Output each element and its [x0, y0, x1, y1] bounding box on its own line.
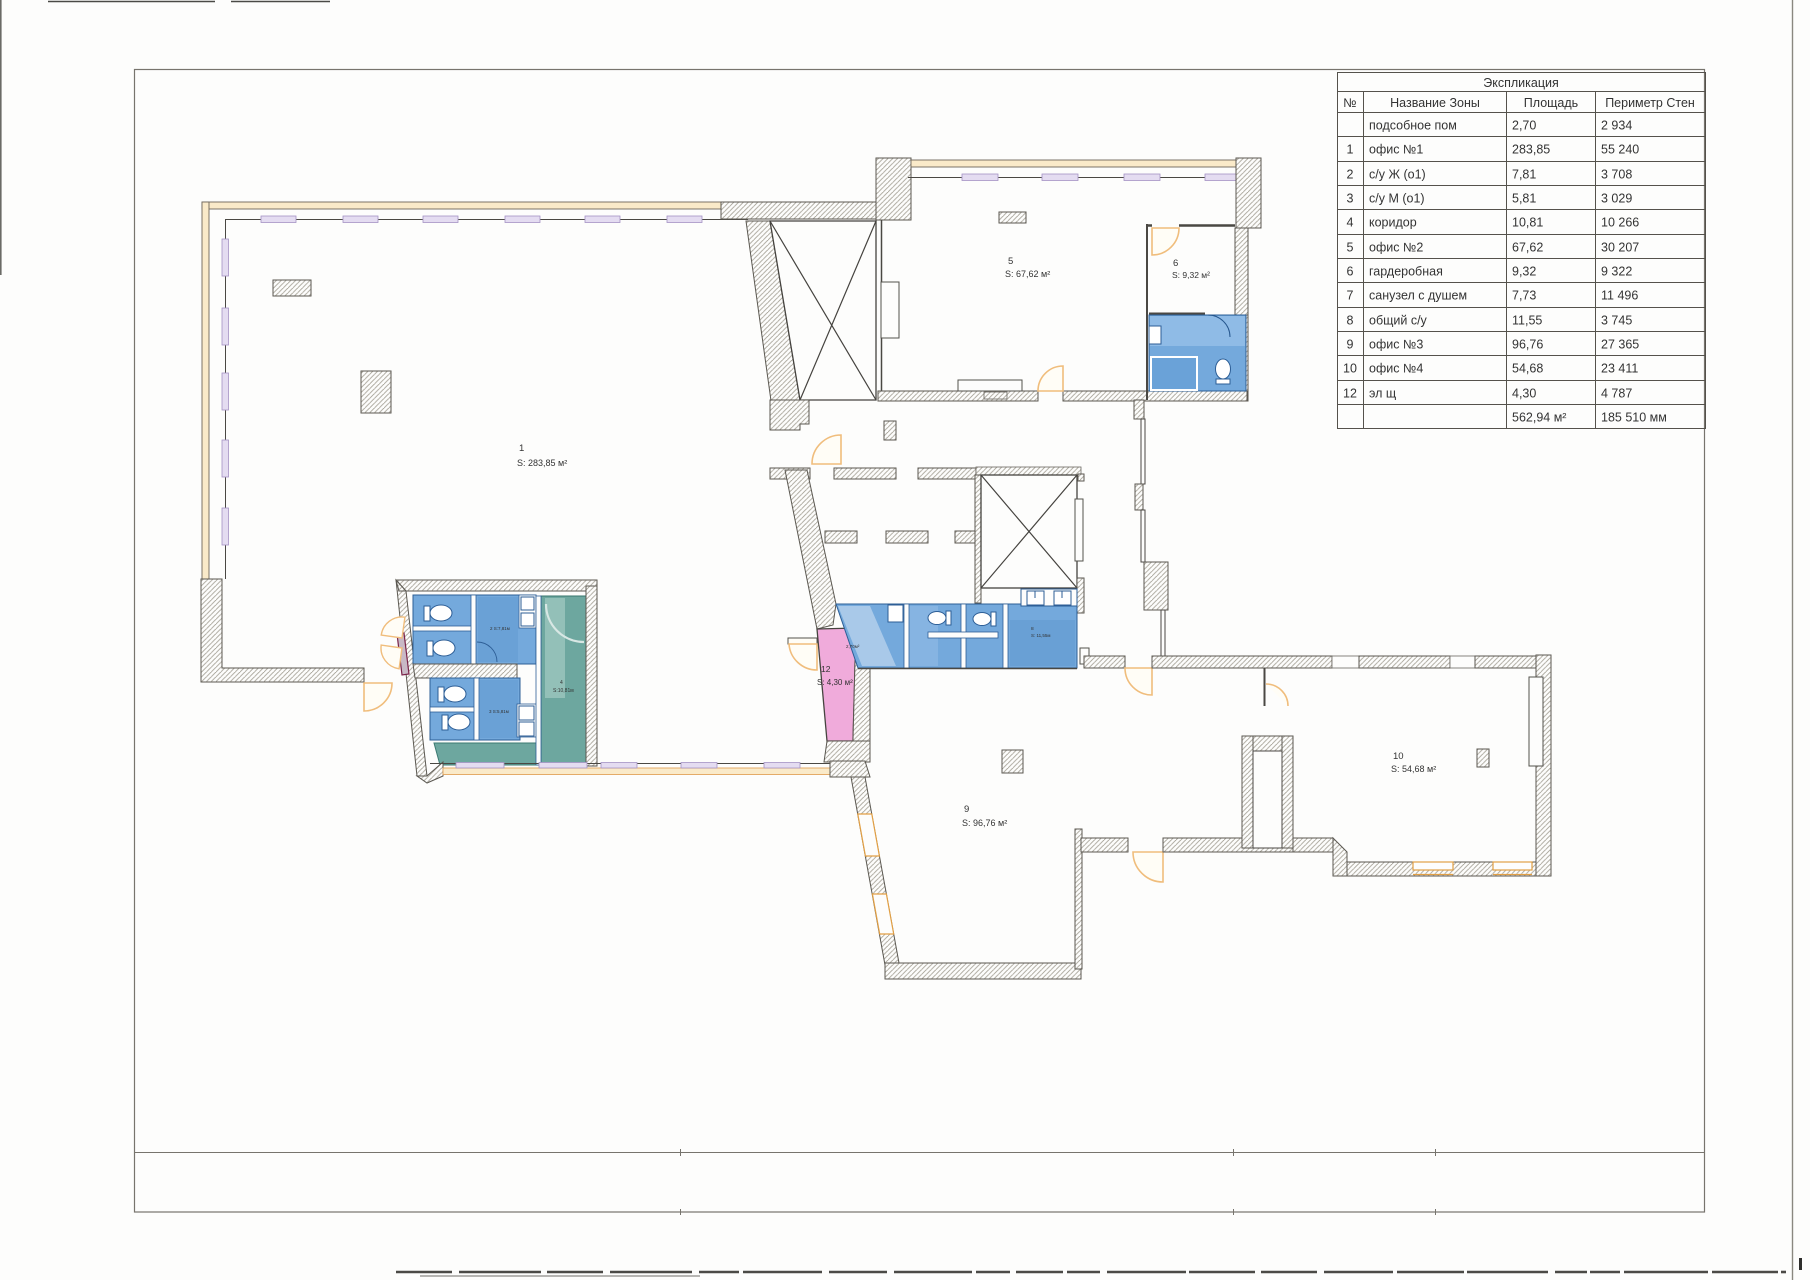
svg-text:9,32: 9,32 [1512, 265, 1536, 279]
svg-text:67,62: 67,62 [1512, 241, 1543, 255]
svg-text:7: 7 [1347, 289, 1354, 303]
svg-text:10,81: 10,81 [1512, 216, 1543, 230]
svg-text:8: 8 [1031, 626, 1034, 632]
svg-text:3 029: 3 029 [1601, 192, 1632, 206]
svg-text:54,68: 54,68 [1512, 362, 1543, 376]
svg-text:10 266: 10 266 [1601, 216, 1639, 230]
svg-text:S: 9,32 м²: S: 9,32 м² [1172, 270, 1210, 280]
svg-text:6: 6 [1173, 258, 1178, 269]
svg-text:11,55: 11,55 [1512, 314, 1542, 328]
svg-text:5,81: 5,81 [1512, 192, 1536, 206]
svg-text:S: 11,55м: S: 11,55м [1031, 633, 1051, 638]
svg-text:283,85: 283,85 [1512, 143, 1550, 157]
svg-text:7,81: 7,81 [1512, 168, 1536, 182]
svg-text:с/у М (о1): с/у М (о1) [1369, 192, 1425, 206]
svg-text:гардеробная: гардеробная [1369, 265, 1443, 279]
svg-text:офис №1: офис №1 [1369, 143, 1423, 157]
svg-text:эл щ: эл щ [1369, 387, 1396, 401]
svg-text:офис №4: офис №4 [1369, 362, 1423, 376]
svg-text:Периметр Стен: Периметр Стен [1605, 96, 1695, 110]
svg-text:30 207: 30 207 [1601, 241, 1639, 255]
svg-text:S:10,81м: S:10,81м [553, 688, 574, 694]
svg-text:3 745: 3 745 [1601, 314, 1632, 328]
svg-text:3: 3 [1347, 192, 1354, 206]
svg-text:2,70: 2,70 [1512, 119, 1536, 133]
svg-text:9: 9 [964, 804, 969, 815]
svg-text:5: 5 [1347, 241, 1354, 255]
svg-text:12: 12 [1343, 387, 1357, 401]
svg-text:1: 1 [519, 443, 524, 454]
svg-text:4: 4 [560, 680, 563, 686]
svg-text:S: 4,30 м²: S: 4,30 м² [817, 678, 853, 687]
svg-text:2: 2 [1347, 168, 1354, 182]
svg-text:3 708: 3 708 [1601, 168, 1632, 182]
svg-text:2 S:7,81м: 2 S:7,81м [490, 626, 510, 631]
svg-text:5: 5 [1008, 256, 1013, 267]
svg-text:санузел с душем: санузел с душем [1369, 289, 1467, 303]
svg-text:562,94 м²: 562,94 м² [1512, 411, 1566, 425]
svg-text:4,30: 4,30 [1512, 387, 1536, 401]
svg-text:Экспликация: Экспликация [1483, 76, 1559, 90]
svg-text:10: 10 [1343, 362, 1357, 376]
svg-text:9: 9 [1347, 338, 1354, 352]
svg-text:55 240: 55 240 [1601, 143, 1639, 157]
svg-text:1: 1 [1347, 143, 1354, 157]
svg-text:S: 283,85 м²: S: 283,85 м² [517, 458, 567, 468]
svg-text:7,73: 7,73 [1512, 289, 1536, 303]
svg-text:офис №2: офис №2 [1369, 241, 1423, 255]
svg-text:4: 4 [1347, 216, 1354, 230]
svg-text:96,76: 96,76 [1512, 338, 1543, 352]
svg-text:с/у Ж (о1): с/у Ж (о1) [1369, 168, 1426, 182]
svg-text:Площадь: Площадь [1524, 96, 1578, 110]
svg-text:4 787: 4 787 [1601, 387, 1632, 401]
svg-text:12: 12 [821, 664, 831, 674]
svg-text:подсобное пом: подсобное пом [1369, 119, 1457, 133]
svg-text:коридор: коридор [1369, 216, 1417, 230]
svg-text:3 S:5,81м: 3 S:5,81м [489, 709, 509, 714]
svg-text:Название Зоны: Название Зоны [1390, 96, 1480, 110]
svg-text:S: 54,68 м²: S: 54,68 м² [1391, 764, 1436, 774]
svg-text:185 510 мм: 185 510 мм [1601, 411, 1667, 425]
svg-text:2 934: 2 934 [1601, 119, 1632, 133]
svg-text:9 322: 9 322 [1601, 265, 1632, 279]
svg-text:23 411: 23 411 [1601, 362, 1638, 376]
svg-text:10: 10 [1393, 751, 1404, 762]
svg-text:27 365: 27 365 [1601, 338, 1639, 352]
svg-text:8: 8 [1347, 314, 1354, 328]
svg-text:2,70м²: 2,70м² [846, 644, 860, 649]
svg-text:11 496: 11 496 [1601, 289, 1638, 303]
svg-text:общий с/у: общий с/у [1369, 314, 1428, 328]
svg-text:S: 67,62 м²: S: 67,62 м² [1005, 269, 1050, 279]
svg-text:S: 96,76 м²: S: 96,76 м² [962, 818, 1007, 828]
svg-text:офис №3: офис №3 [1369, 338, 1423, 352]
svg-text:№: № [1343, 96, 1356, 110]
svg-text:6: 6 [1347, 265, 1354, 279]
